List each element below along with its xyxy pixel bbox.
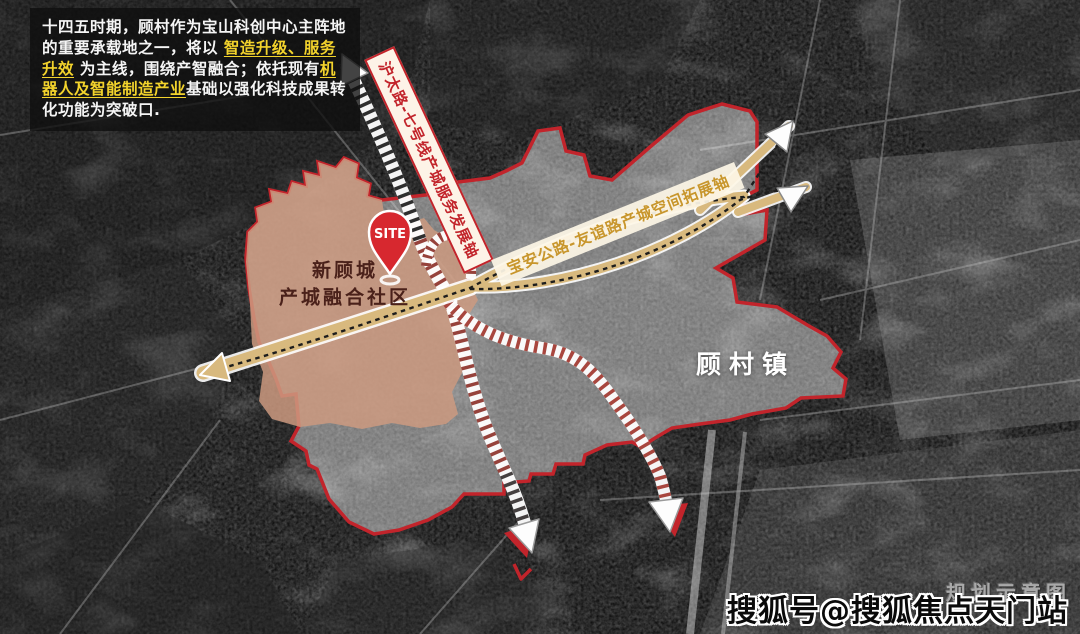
core-area-label: 新顾城 产城融合社区 [279, 257, 411, 310]
planning-map-screenshot: SITE 十四五时期，顾村作为宝山科创中心主阵地的重要承载地之一，将以 智造升级… [0, 0, 1080, 634]
core-area-name-line1: 新顾城 [279, 257, 411, 284]
watermark-text: 搜狐号@搜狐焦点天门站 [727, 586, 1068, 630]
core-area-name-line2: 产城融合社区 [279, 284, 411, 311]
town-label: 顾村镇 [696, 345, 795, 381]
planning-intro-panel: 十四五时期，顾村作为宝山科创中心主阵地的重要承载地之一，将以 智造升级、服务升效… [30, 8, 360, 131]
intro-text-2: 为主线，围绕产智融合；依托现有 [74, 60, 320, 78]
site-pin-label: SITE [374, 227, 406, 242]
